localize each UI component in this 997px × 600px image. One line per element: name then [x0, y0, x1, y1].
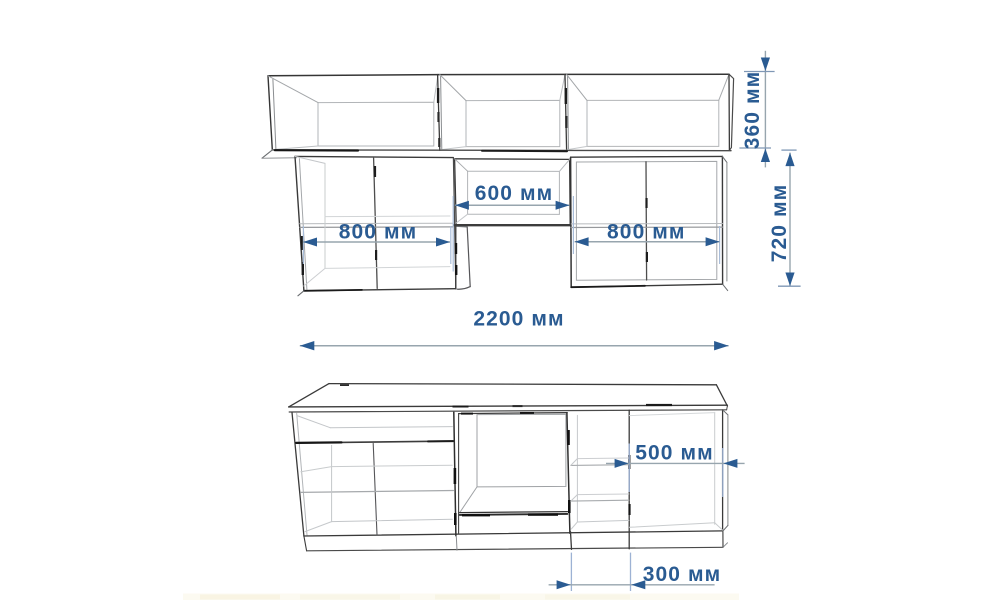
svg-text:2200 мм: 2200 мм	[473, 308, 564, 331]
svg-text:500 мм: 500 мм	[635, 441, 714, 464]
svg-text:800 мм: 800 мм	[339, 221, 418, 244]
svg-text:720 мм: 720 мм	[768, 184, 791, 263]
svg-text:360 мм: 360 мм	[741, 71, 764, 150]
svg-text:800 мм: 800 мм	[607, 221, 686, 244]
svg-text:300 мм: 300 мм	[643, 563, 722, 586]
svg-text:600 мм: 600 мм	[475, 182, 554, 205]
